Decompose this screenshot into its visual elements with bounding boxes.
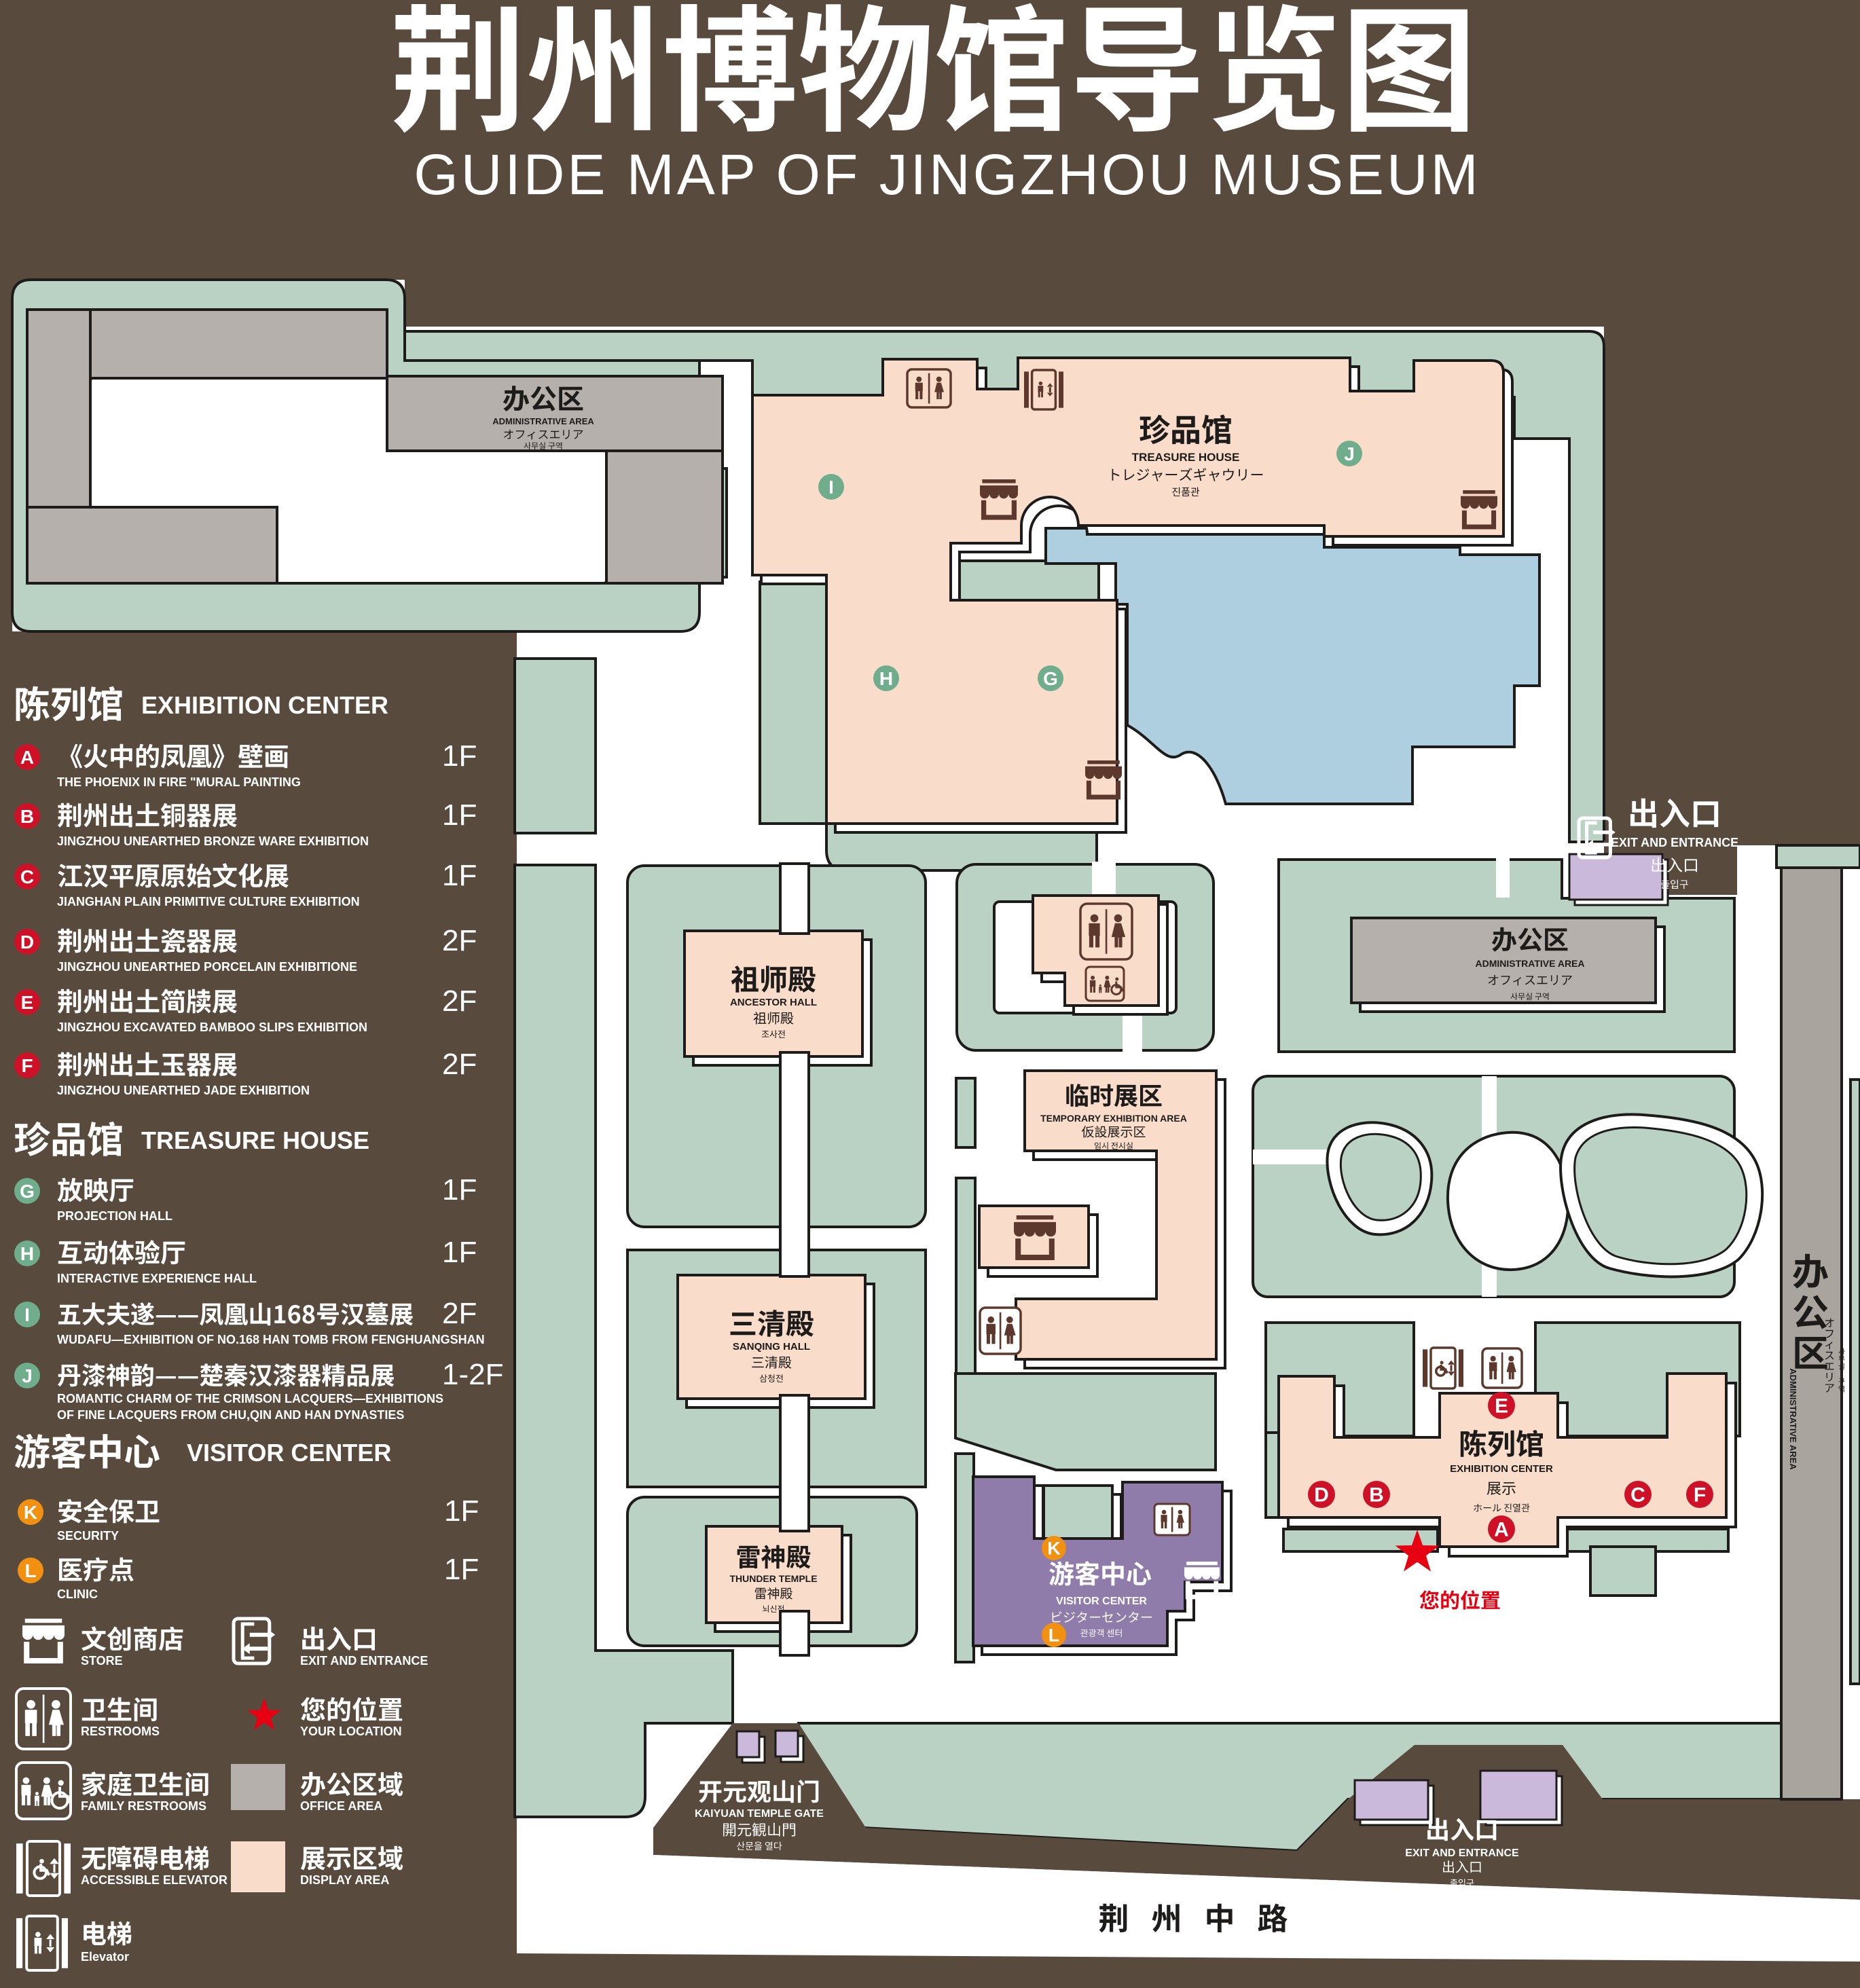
- svg-text:A: A: [20, 747, 34, 768]
- svg-text:G: G: [1043, 668, 1058, 689]
- svg-text:JIANGHAN PLAIN PRIMITIVE CULTU: JIANGHAN PLAIN PRIMITIVE CULTURE EXHIBIT…: [57, 895, 360, 908]
- svg-text:VISITOR CENTER: VISITOR CENTER: [187, 1439, 391, 1467]
- svg-text:GUIDE MAP OF JINGZHOU MUSEUM: GUIDE MAP OF JINGZHOU MUSEUM: [414, 143, 1480, 206]
- svg-text:EXIT AND ENTRANCE: EXIT AND ENTRANCE: [1405, 1847, 1519, 1859]
- svg-text:1F: 1F: [444, 1494, 479, 1528]
- svg-text:DISPLAY AREA: DISPLAY AREA: [300, 1873, 389, 1887]
- svg-text:C: C: [1630, 1484, 1645, 1507]
- svg-text:ADMINISTRATIVE AREA: ADMINISTRATIVE AREA: [492, 416, 594, 426]
- svg-text:G: G: [20, 1181, 35, 1202]
- svg-text:A: A: [1494, 1519, 1509, 1541]
- svg-text:1-2F: 1-2F: [442, 1358, 503, 1391]
- svg-text:Elevator: Elevator: [81, 1950, 129, 1964]
- svg-text:H: H: [20, 1243, 34, 1264]
- svg-text:L: L: [1048, 1625, 1060, 1645]
- svg-text:2F: 2F: [442, 924, 477, 957]
- svg-text:INTERACTIVE EXPERIENCE HALL: INTERACTIVE EXPERIENCE HALL: [57, 1272, 257, 1285]
- svg-text:D: D: [20, 932, 34, 953]
- svg-text:KAIYUAN TEMPLE GATE: KAIYUAN TEMPLE GATE: [695, 1808, 824, 1820]
- svg-text:PROJECTION HALL: PROJECTION HALL: [57, 1209, 172, 1223]
- svg-text:B: B: [1369, 1484, 1384, 1507]
- svg-text:H: H: [879, 668, 893, 689]
- svg-text:TREASURE HOUSE: TREASURE HOUSE: [1132, 451, 1240, 464]
- svg-text:TEMPORARY EXHIBITION AREA: TEMPORARY EXHIBITION AREA: [1040, 1113, 1187, 1124]
- svg-text:E: E: [21, 992, 34, 1013]
- svg-text:1F: 1F: [442, 1236, 477, 1269]
- svg-text:WUDAFU—EXHIBITION OF NO.168 HA: WUDAFU—EXHIBITION OF NO.168 HAN TOMB FRO…: [57, 1333, 485, 1346]
- svg-text:STORE: STORE: [81, 1654, 123, 1668]
- svg-text:SECURITY: SECURITY: [57, 1529, 119, 1543]
- svg-text:YOUR LOCATION: YOUR LOCATION: [300, 1725, 402, 1738]
- svg-text:FAMILY RESTROOMS: FAMILY RESTROOMS: [81, 1799, 206, 1813]
- svg-text:EXIT AND ENTRANCE: EXIT AND ENTRANCE: [1611, 836, 1738, 849]
- svg-text:JINGZHOU UNEARTHED PORCELAIN E: JINGZHOU UNEARTHED PORCELAIN EXHIBITIONE: [57, 960, 357, 974]
- svg-text:ANCESTOR HALL: ANCESTOR HALL: [730, 997, 817, 1008]
- svg-text:CLINIC: CLINIC: [57, 1587, 98, 1601]
- svg-text:VISITOR CENTER: VISITOR CENTER: [1056, 1596, 1147, 1607]
- svg-text:1F: 1F: [444, 1553, 479, 1586]
- svg-text:RESTROOMS: RESTROOMS: [81, 1725, 160, 1738]
- svg-text:K: K: [24, 1502, 37, 1523]
- svg-text:J: J: [22, 1365, 33, 1386]
- svg-text:1F: 1F: [442, 798, 477, 832]
- svg-text:J: J: [1344, 443, 1355, 464]
- svg-text:EXHIBITION CENTER: EXHIBITION CENTER: [141, 691, 388, 719]
- svg-text:OFFICE AREA: OFFICE AREA: [300, 1799, 382, 1813]
- svg-text:E: E: [1495, 1395, 1508, 1418]
- svg-text:F: F: [21, 1055, 33, 1076]
- svg-text:SANQING HALL: SANQING HALL: [733, 1341, 810, 1352]
- svg-text:I: I: [24, 1304, 30, 1325]
- svg-text:2F: 2F: [442, 1048, 477, 1081]
- svg-text:L: L: [24, 1560, 36, 1581]
- svg-text:TREASURE HOUSE: TREASURE HOUSE: [141, 1126, 369, 1154]
- svg-text:1F: 1F: [442, 739, 477, 773]
- svg-text:I: I: [828, 477, 834, 498]
- svg-text:F: F: [1694, 1484, 1706, 1507]
- svg-text:THE PHOENIX IN FIRE "MURAL PAI: THE PHOENIX IN FIRE "MURAL PAINTING: [57, 775, 301, 789]
- svg-text:C: C: [20, 866, 34, 887]
- svg-text:JINGZHOU EXCAVATED BAMBOO SLIP: JINGZHOU EXCAVATED BAMBOO SLIPS EXHIBITI…: [57, 1020, 367, 1034]
- svg-text:JINGZHOU UNEARTHED JADE EXHIBI: JINGZHOU UNEARTHED JADE EXHIBITION: [57, 1084, 310, 1097]
- svg-text:EXHIBITION CENTER: EXHIBITION CENTER: [1450, 1463, 1553, 1475]
- svg-text:1F: 1F: [442, 1173, 477, 1207]
- svg-text:EXIT AND ENTRANCE: EXIT AND ENTRANCE: [300, 1654, 428, 1668]
- svg-text:ADMINISTRATIVE AREA: ADMINISTRATIVE AREA: [1476, 958, 1585, 969]
- svg-text:D: D: [1314, 1484, 1329, 1507]
- svg-text:2F: 2F: [442, 1297, 477, 1330]
- svg-text:ROMANTIC CHARM OF THE CRIMSON: ROMANTIC CHARM OF THE CRIMSON LACQUERS—E…: [57, 1392, 443, 1405]
- svg-text:1F: 1F: [442, 859, 477, 892]
- svg-text:OF FINE LACQUERS FROM CHU,QIN: OF FINE LACQUERS FROM CHU,QIN AND HAN DY…: [57, 1408, 404, 1422]
- svg-text:ADMINISTRATIVE AREA: ADMINISTRATIVE AREA: [1788, 1368, 1798, 1470]
- svg-text:K: K: [1047, 1538, 1061, 1558]
- svg-text:JINGZHOU UNEARTHED BRONZE WARE: JINGZHOU UNEARTHED BRONZE WARE EXHIBITIO…: [57, 834, 369, 848]
- svg-text:B: B: [20, 806, 34, 827]
- svg-text:2F: 2F: [442, 984, 477, 1018]
- svg-text:ACCESSIBLE ELEVATOR: ACCESSIBLE ELEVATOR: [81, 1873, 227, 1887]
- svg-text:THUNDER TEMPLE: THUNDER TEMPLE: [729, 1573, 817, 1584]
